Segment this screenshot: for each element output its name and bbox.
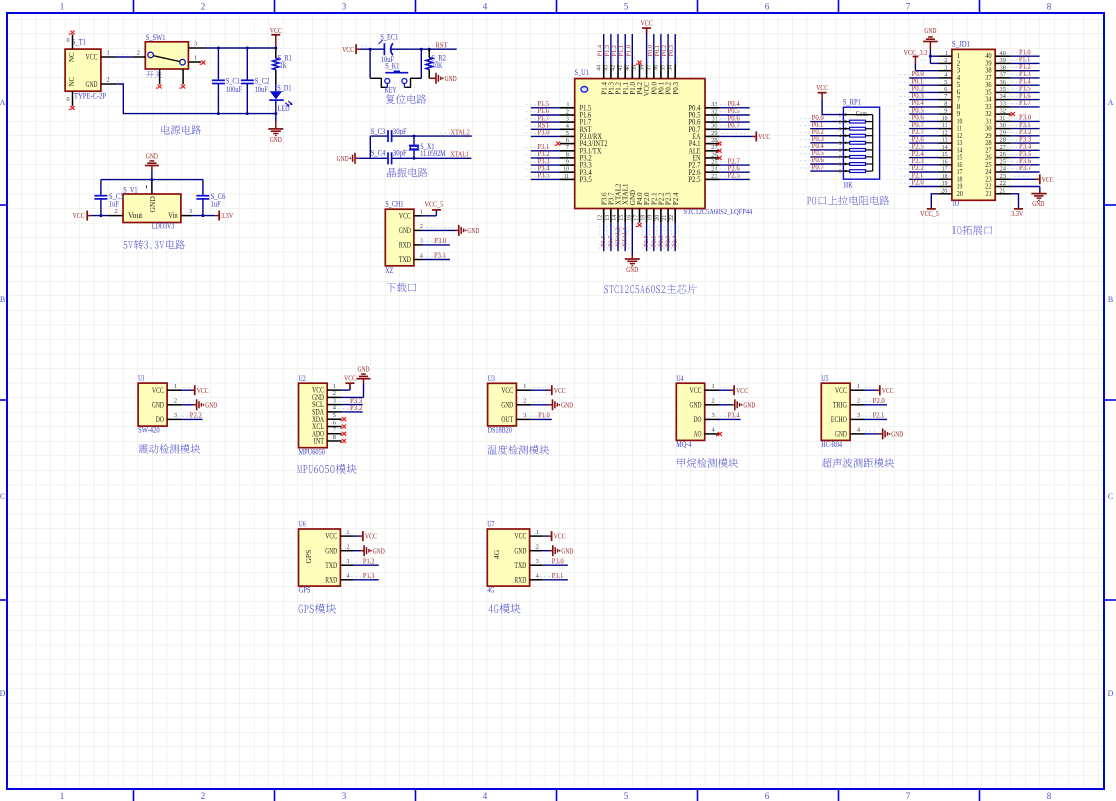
svg-text:U5: U5: [821, 374, 828, 383]
svg-text:6: 6: [333, 419, 336, 426]
svg-text:LED: LED: [278, 104, 290, 113]
svg-text:S_K1: S_K1: [385, 61, 399, 70]
svg-text:P1.2: P1.2: [611, 45, 618, 57]
svg-text:GND: GND: [373, 546, 385, 555]
svg-text:7: 7: [944, 93, 947, 100]
svg-text:VCC: VCC: [514, 532, 526, 541]
svg-text:2: 2: [201, 2, 206, 12]
svg-text:S_C3: S_C3: [371, 127, 386, 136]
svg-text:22: 22: [1000, 180, 1006, 187]
svg-text:11: 11: [942, 122, 947, 129]
svg-text:8: 8: [839, 162, 842, 168]
svg-text:43: 43: [604, 65, 610, 71]
svg-text:P3.7: P3.7: [1019, 164, 1032, 172]
svg-text:9: 9: [944, 108, 947, 115]
svg-text:1: 1: [839, 113, 842, 119]
svg-text:GPS: GPS: [299, 586, 311, 595]
svg-text:A: A: [1108, 98, 1114, 107]
svg-text:3.3V: 3.3V: [1011, 209, 1024, 218]
svg-text:P0.1: P0.1: [654, 45, 661, 57]
svg-text:P0.7: P0.7: [728, 122, 741, 130]
svg-text:XZ: XZ: [385, 266, 393, 275]
svg-text:TYPE-C-2P: TYPE-C-2P: [74, 92, 106, 101]
svg-text:P1.0: P1.0: [625, 45, 632, 57]
svg-text:P2.2: P2.2: [657, 235, 664, 247]
svg-text:B: B: [1108, 295, 1113, 304]
svg-text:NC: NC: [68, 76, 76, 86]
svg-text:8: 8: [1047, 2, 1052, 12]
svg-text:GND: GND: [358, 365, 370, 374]
svg-text:6: 6: [944, 86, 947, 93]
svg-text:GND: GND: [148, 196, 157, 213]
svg-text:Vout: Vout: [128, 211, 143, 220]
svg-text:VCC: VCC: [641, 19, 653, 28]
svg-text:LDO3V3: LDO3V3: [152, 221, 174, 230]
svg-text:GND: GND: [337, 154, 349, 163]
svg-text:17: 17: [633, 215, 639, 221]
svg-text:24: 24: [1000, 166, 1007, 173]
svg-text:20: 20: [957, 190, 964, 198]
svg-text:VCC: VCC: [342, 45, 354, 54]
svg-text:P2.0: P2.0: [643, 235, 650, 247]
svg-text:4: 4: [839, 134, 842, 140]
svg-text:VCC: VCC: [501, 386, 513, 395]
svg-text:VCC_5: VCC_5: [425, 200, 444, 209]
svg-text:31: 31: [1000, 115, 1006, 122]
svg-text:7: 7: [906, 2, 911, 12]
svg-text:1: 1: [523, 383, 526, 390]
svg-text:39: 39: [1000, 57, 1006, 64]
svg-text:P0.2: P0.2: [661, 45, 668, 57]
svg-text:MQ-4: MQ-4: [676, 440, 691, 449]
svg-text:9: 9: [839, 169, 842, 175]
svg-text:DO: DO: [694, 415, 702, 424]
svg-text:4G: 4G: [492, 549, 501, 559]
svg-text:3: 3: [536, 558, 539, 565]
svg-text:3: 3: [174, 412, 177, 419]
svg-text:XTAL2: XTAL2: [615, 227, 622, 247]
svg-text:10K: 10K: [843, 180, 853, 189]
svg-text:U6: U6: [299, 520, 306, 529]
svg-text:27: 27: [1000, 144, 1006, 151]
svg-text:1uF: 1uF: [211, 199, 221, 208]
svg-text:HC-R04: HC-R04: [821, 440, 842, 449]
svg-text:GND: GND: [501, 400, 513, 409]
svg-text:STC12C5A60S2_LQFP44: STC12C5A60S2_LQFP44: [684, 208, 753, 216]
svg-text:U1: U1: [138, 374, 145, 383]
svg-text:GND: GND: [205, 400, 217, 409]
svg-text:VCC: VCC: [325, 532, 337, 541]
svg-text:1: 1: [174, 383, 177, 390]
svg-text:1: 1: [536, 529, 539, 536]
svg-text:GND: GND: [561, 400, 573, 409]
svg-text:7: 7: [839, 155, 842, 161]
svg-text:32: 32: [1000, 108, 1006, 115]
svg-text:S_D1: S_D1: [277, 84, 291, 93]
svg-text:C: C: [0, 492, 5, 501]
svg-text:VCC: VCC: [365, 532, 377, 541]
svg-text:P3.5: P3.5: [537, 172, 550, 180]
svg-text:15: 15: [942, 151, 948, 158]
svg-text:GND: GND: [626, 265, 638, 274]
svg-text:P2.4: P2.4: [672, 192, 680, 205]
svg-text:P1.3: P1.3: [363, 572, 375, 580]
svg-text:P3.7: P3.7: [607, 235, 614, 247]
svg-text:7: 7: [333, 427, 336, 434]
svg-text:28: 28: [1000, 137, 1006, 144]
svg-text:GND: GND: [270, 135, 282, 144]
svg-text:GND: GND: [891, 430, 903, 439]
svg-text:GND: GND: [467, 226, 479, 235]
svg-text:VCC: VCC: [835, 386, 847, 395]
svg-text:S_EC1: S_EC1: [380, 33, 398, 42]
svg-text:RXD: RXD: [514, 575, 526, 584]
svg-text:U4: U4: [676, 374, 683, 383]
svg-text:40: 40: [625, 65, 631, 71]
svg-text:38: 38: [639, 65, 645, 71]
svg-text:VCC: VCC: [344, 374, 356, 383]
svg-text:RXD: RXD: [399, 241, 411, 250]
svg-text:39: 39: [632, 65, 638, 71]
svg-text:3: 3: [342, 791, 347, 801]
svg-text:P3.1: P3.1: [434, 252, 446, 260]
svg-text:3: 3: [523, 412, 526, 419]
svg-text:VCC: VCC: [816, 83, 828, 92]
svg-text:VCC: VCC: [73, 211, 85, 220]
svg-text:U2: U2: [299, 374, 306, 383]
svg-text:11: 11: [564, 173, 569, 180]
svg-text:GND: GND: [146, 152, 158, 161]
svg-text:30: 30: [1000, 122, 1006, 129]
svg-text:VCC: VCC: [1042, 175, 1054, 184]
svg-text:3: 3: [944, 64, 947, 71]
svg-text:RST: RST: [435, 41, 448, 49]
svg-text:GND: GND: [690, 400, 702, 409]
svg-text:P3.4: P3.4: [727, 412, 740, 420]
svg-text:KEY: KEY: [385, 86, 397, 95]
svg-text:5: 5: [944, 79, 947, 86]
svg-text:15: 15: [619, 215, 625, 221]
svg-text:GND: GND: [924, 26, 936, 35]
svg-text:P0.0: P0.0: [647, 45, 654, 57]
svg-text:2: 2: [137, 50, 140, 57]
svg-text:6: 6: [765, 2, 770, 12]
svg-text:VCC: VCC: [554, 532, 566, 541]
svg-text:2: 2: [107, 77, 110, 84]
svg-text:3: 3: [839, 127, 842, 133]
svg-text:P0.7: P0.7: [812, 163, 825, 171]
svg-text:19: 19: [648, 215, 654, 221]
svg-text:26: 26: [711, 151, 717, 158]
svg-text:35: 35: [661, 65, 667, 71]
svg-text:33: 33: [1000, 101, 1006, 108]
svg-text:VCC_5: VCC_5: [920, 209, 939, 218]
svg-text:GND: GND: [561, 546, 573, 555]
svg-text:VCC: VCC: [554, 386, 566, 395]
svg-text:S_CH1: S_CH1: [385, 200, 403, 209]
svg-text:D: D: [1108, 689, 1114, 698]
svg-text:U3: U3: [488, 374, 495, 383]
svg-text:3: 3: [566, 116, 569, 123]
svg-text:7: 7: [906, 791, 911, 801]
svg-text:GND: GND: [325, 546, 337, 555]
svg-text:TRIG: TRIG: [833, 400, 847, 409]
svg-text:C: C: [1108, 492, 1113, 501]
svg-text:TXD: TXD: [514, 561, 526, 570]
svg-text:8: 8: [1047, 791, 1052, 801]
svg-text:37: 37: [1000, 72, 1006, 79]
svg-text:18: 18: [641, 215, 647, 221]
svg-text:44: 44: [596, 65, 602, 71]
svg-text:2: 2: [346, 544, 349, 551]
svg-text:P2.1: P2.1: [650, 236, 657, 248]
svg-text:P3.1: P3.1: [552, 572, 564, 580]
svg-text:1: 1: [420, 209, 423, 216]
svg-text:20: 20: [655, 215, 661, 221]
svg-text:A: A: [0, 98, 6, 107]
svg-text:17: 17: [942, 166, 948, 173]
svg-text:14: 14: [612, 215, 618, 221]
svg-text:38: 38: [1000, 64, 1006, 71]
svg-text:1: 1: [107, 50, 110, 57]
svg-text:GND: GND: [743, 400, 755, 409]
svg-text:3: 3: [346, 558, 349, 565]
svg-text:NC: NC: [68, 52, 76, 62]
svg-text:10uF: 10uF: [255, 85, 269, 94]
svg-text:8: 8: [566, 151, 569, 158]
svg-text:26: 26: [1000, 151, 1006, 158]
svg-text:P3.0: P3.0: [552, 557, 565, 565]
svg-text:2: 2: [536, 544, 539, 551]
svg-text:S_JD1: S_JD1: [952, 39, 970, 48]
svg-text:14: 14: [942, 144, 949, 151]
svg-text:VCC: VCC: [758, 132, 770, 141]
svg-text:2: 2: [712, 398, 715, 405]
svg-text:1: 1: [333, 383, 336, 390]
svg-text:36: 36: [654, 65, 660, 71]
svg-text:VCC: VCC: [399, 211, 411, 220]
svg-text:6: 6: [566, 137, 569, 144]
svg-text:TXD: TXD: [399, 255, 411, 264]
svg-text:VCC: VCC: [152, 386, 164, 395]
svg-text:6: 6: [765, 791, 770, 801]
svg-text:13: 13: [605, 215, 611, 221]
svg-text:21: 21: [986, 190, 992, 198]
svg-text:5: 5: [624, 2, 629, 12]
svg-text:22: 22: [669, 215, 675, 221]
svg-text:7: 7: [566, 144, 569, 151]
svg-text:MPU6050: MPU6050: [299, 447, 325, 456]
svg-text:P3.2: P3.2: [350, 404, 363, 412]
svg-text:19: 19: [942, 180, 948, 187]
svg-text:VCC: VCC: [270, 26, 282, 35]
svg-text:P1.4: P1.4: [597, 44, 604, 56]
svg-text:5: 5: [333, 412, 336, 419]
svg-text:8: 8: [944, 101, 947, 108]
svg-text:12: 12: [598, 215, 604, 221]
svg-text:4: 4: [483, 2, 488, 12]
svg-text:D: D: [0, 689, 6, 698]
svg-text:5: 5: [839, 141, 842, 147]
svg-text:23: 23: [1000, 173, 1006, 180]
svg-text:P2.2: P2.2: [190, 412, 203, 420]
svg-text:4: 4: [483, 791, 488, 801]
svg-text:100uF: 100uF: [226, 85, 243, 94]
svg-text:3.3V: 3.3V: [221, 211, 234, 220]
svg-text:2: 2: [839, 120, 842, 126]
svg-text:2: 2: [857, 398, 860, 405]
svg-text:4G: 4G: [487, 586, 494, 595]
svg-text:21: 21: [662, 215, 668, 221]
svg-text:RXD: RXD: [325, 575, 337, 584]
svg-text:GND: GND: [152, 400, 164, 409]
svg-text:OUT: OUT: [501, 415, 513, 424]
svg-text:5: 5: [624, 791, 629, 801]
svg-text:B: B: [0, 295, 5, 304]
svg-text:13: 13: [942, 137, 948, 144]
svg-text:36: 36: [1000, 79, 1006, 86]
svg-text:30pF: 30pF: [393, 127, 407, 136]
svg-text:P2.1: P2.1: [873, 412, 885, 420]
svg-text:10: 10: [563, 166, 569, 173]
svg-text:GPS: GPS: [304, 550, 313, 564]
svg-text:VCC: VCC: [736, 386, 748, 395]
svg-text:VCC: VCC: [86, 53, 98, 62]
svg-text:2: 2: [566, 108, 569, 115]
svg-text:GND: GND: [86, 80, 98, 89]
svg-text:37: 37: [646, 65, 652, 71]
svg-text:0: 0: [67, 96, 70, 103]
svg-text:S_RP1: S_RP1: [843, 98, 861, 107]
svg-text:XTAL1: XTAL1: [450, 151, 469, 159]
svg-text:40: 40: [1000, 50, 1006, 57]
svg-text:3: 3: [333, 397, 336, 404]
svg-text:P2.0: P2.0: [873, 397, 886, 405]
svg-text:3: 3: [342, 2, 347, 12]
svg-text:11.0592M: 11.0592M: [420, 149, 445, 158]
svg-text:S_U1: S_U1: [575, 68, 589, 77]
svg-text:8: 8: [333, 434, 336, 441]
svg-text:34: 34: [1000, 93, 1007, 100]
svg-text:2: 2: [523, 398, 526, 405]
svg-text:29: 29: [1000, 129, 1006, 136]
svg-text:1: 1: [712, 383, 715, 390]
svg-text:P1.2: P1.2: [363, 557, 375, 565]
svg-text:27: 27: [711, 144, 717, 151]
svg-text:16: 16: [626, 215, 632, 221]
svg-text:P2.4: P2.4: [672, 235, 679, 247]
svg-text:AO: AO: [694, 430, 702, 439]
svg-text:S_C4: S_C4: [371, 148, 386, 157]
svg-text:ECHO: ECHO: [831, 415, 847, 424]
svg-text:3: 3: [189, 208, 192, 215]
svg-text:TXD: TXD: [325, 561, 337, 570]
svg-text:P1.0: P1.0: [538, 412, 550, 420]
svg-text:3: 3: [194, 41, 197, 48]
svg-text:10K: 10K: [432, 61, 442, 70]
svg-text:P3.0: P3.0: [434, 237, 447, 245]
svg-text:P2.3: P2.3: [665, 235, 672, 247]
svg-text:P3.6: P3.6: [600, 235, 607, 247]
svg-text:P3.0: P3.0: [537, 129, 550, 137]
svg-text:16: 16: [942, 158, 948, 165]
svg-text:25: 25: [1000, 158, 1006, 165]
svg-text:5: 5: [566, 130, 569, 137]
svg-text:S_SW1: S_SW1: [146, 33, 166, 42]
svg-text:1: 1: [346, 529, 349, 536]
svg-text:6: 6: [839, 148, 842, 154]
svg-text:DO: DO: [156, 415, 164, 424]
svg-text:29: 29: [711, 130, 717, 137]
svg-text:41: 41: [618, 65, 624, 71]
svg-text:10: 10: [942, 115, 948, 122]
svg-text:42: 42: [611, 65, 617, 71]
svg-text:DS18B20: DS18B20: [488, 426, 512, 435]
svg-text:GND: GND: [514, 546, 526, 555]
svg-text:P0.3: P0.3: [672, 82, 680, 95]
svg-text:2: 2: [333, 390, 336, 397]
svg-text:P2.0: P2.0: [912, 179, 925, 187]
svg-text:VCC: VCC: [197, 386, 209, 395]
svg-text:20: 20: [941, 187, 947, 194]
svg-text:1: 1: [945, 50, 948, 57]
svg-text:VCC: VCC: [882, 386, 894, 395]
svg-text:GND: GND: [399, 226, 411, 235]
svg-text:IO: IO: [953, 199, 959, 208]
svg-text:P2.5: P2.5: [688, 175, 700, 184]
svg-text:28: 28: [711, 137, 717, 144]
svg-text:VCC: VCC: [690, 386, 702, 395]
svg-text:2: 2: [115, 208, 118, 215]
svg-text:P3.5: P3.5: [580, 175, 592, 184]
svg-text:P1.1: P1.1: [618, 45, 625, 57]
svg-text:2: 2: [201, 791, 206, 801]
svg-text:35: 35: [1000, 86, 1006, 93]
svg-text:1K: 1K: [280, 61, 287, 70]
svg-text:XTAL2: XTAL2: [451, 128, 471, 136]
svg-text:2: 2: [420, 223, 423, 230]
svg-text:S_V1: S_V1: [123, 186, 137, 195]
svg-text:Vin: Vin: [168, 211, 178, 220]
svg-text:S_T1: S_T1: [72, 38, 86, 47]
svg-text:P1.7: P1.7: [1019, 99, 1031, 107]
svg-text:21: 21: [1000, 187, 1006, 194]
svg-text:GND: GND: [445, 74, 457, 83]
svg-text:2: 2: [174, 398, 177, 405]
svg-text:0: 0: [67, 37, 70, 44]
svg-text:U7: U7: [487, 520, 494, 529]
svg-text:P0.3: P0.3: [668, 45, 675, 57]
svg-text:1: 1: [60, 791, 65, 801]
svg-text:1: 1: [60, 2, 65, 12]
svg-text:P2.5: P2.5: [728, 172, 741, 180]
svg-text:30pF: 30pF: [393, 148, 407, 157]
svg-text:1: 1: [566, 101, 569, 108]
svg-text:3: 3: [712, 412, 715, 419]
svg-text:GND: GND: [1032, 199, 1044, 208]
svg-text:SW-420: SW-420: [138, 426, 160, 435]
svg-text:P1.3: P1.3: [604, 45, 611, 57]
svg-text:12: 12: [942, 129, 948, 136]
svg-text:18: 18: [942, 173, 948, 180]
svg-text:INT: INT: [314, 437, 324, 446]
svg-text:9: 9: [566, 159, 569, 166]
svg-text:1uF: 1uF: [109, 199, 119, 208]
svg-text:1: 1: [857, 383, 860, 390]
svg-text:3: 3: [857, 412, 860, 419]
svg-text:XTAL1: XTAL1: [622, 227, 629, 247]
svg-text:1: 1: [194, 55, 197, 62]
